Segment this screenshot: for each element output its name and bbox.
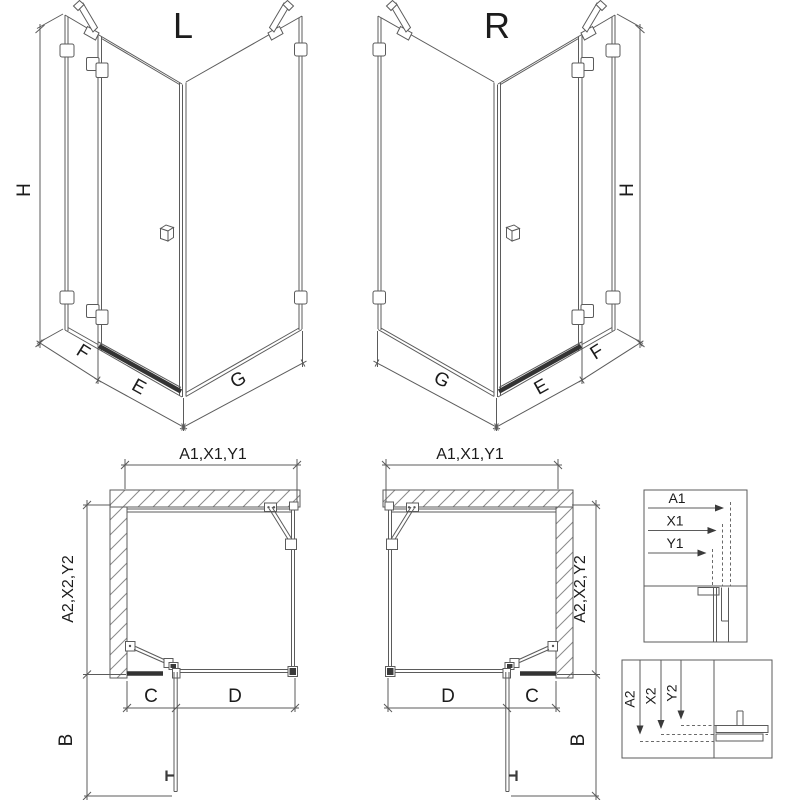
plan-right-dim-d: D — [441, 686, 455, 707]
detail-depth-label-a2: A2 — [622, 690, 638, 707]
shower-enclosure-diagram: L H F E G R H F E G A1,X1,Y1 A2,X2,Y2 C … — [0, 0, 800, 800]
iso-left-title: L — [173, 5, 193, 46]
detail-width-border — [644, 490, 747, 642]
detail-width-label-x1: X1 — [666, 513, 683, 529]
technical-diagram-page: L H F E G R H F E G A1,X1,Y1 A2,X2,Y2 C … — [0, 0, 800, 800]
iso-right-view: R H F E G — [373, 1, 645, 432]
detail-depth-label-x2: X2 — [643, 687, 659, 704]
detail-width-profile — [698, 588, 729, 643]
plan-right-dim-side: A2,X2,Y2 — [572, 555, 589, 623]
detail-depth-box: A2 X2 Y2 — [622, 660, 773, 758]
plan-left-dim-side: A2,X2,Y2 — [60, 555, 77, 623]
iso-left-dim-h: H — [14, 183, 35, 197]
plan-left-dim-top: A1,X1,Y1 — [179, 446, 247, 463]
detail-depth-border — [622, 660, 772, 758]
iso-left-view: L H F E G — [14, 1, 307, 432]
plan-left-dim-b: B — [56, 734, 77, 747]
iso-left-geometry — [36, 1, 308, 432]
iso-right-title: R — [484, 5, 510, 46]
iso-right-dim-f: F — [587, 340, 608, 364]
detail-depth-label-y2: Y2 — [664, 684, 680, 701]
detail-width-box: A1 X1 Y1 — [644, 490, 747, 642]
plan-left-dim-c: C — [144, 686, 158, 707]
plan-right-view: A1,X1,Y1 A2,X2,Y2 D C B — [382, 446, 600, 800]
iso-right-geometry — [373, 1, 645, 432]
plan-right-wall-side — [556, 507, 573, 678]
iso-right-dim-h: H — [617, 183, 638, 197]
detail-width-label-a1: A1 — [668, 490, 685, 506]
iso-left-dim-f: F — [72, 340, 93, 364]
plan-left-dim-d: D — [228, 686, 242, 707]
iso-right-dim-e: E — [531, 375, 552, 400]
detail-depth-profile — [716, 711, 768, 741]
plan-left-wall-side — [110, 507, 127, 678]
plan-left-view: A1,X1,Y1 A2,X2,Y2 C D B — [56, 446, 301, 800]
plan-right-dim-top: A1,X1,Y1 — [436, 446, 504, 463]
iso-left-dim-e: E — [128, 375, 149, 400]
plan-right-dim-c: C — [525, 686, 539, 707]
detail-width-label-y1: Y1 — [666, 535, 683, 551]
plan-right-dim-b: B — [568, 734, 589, 747]
